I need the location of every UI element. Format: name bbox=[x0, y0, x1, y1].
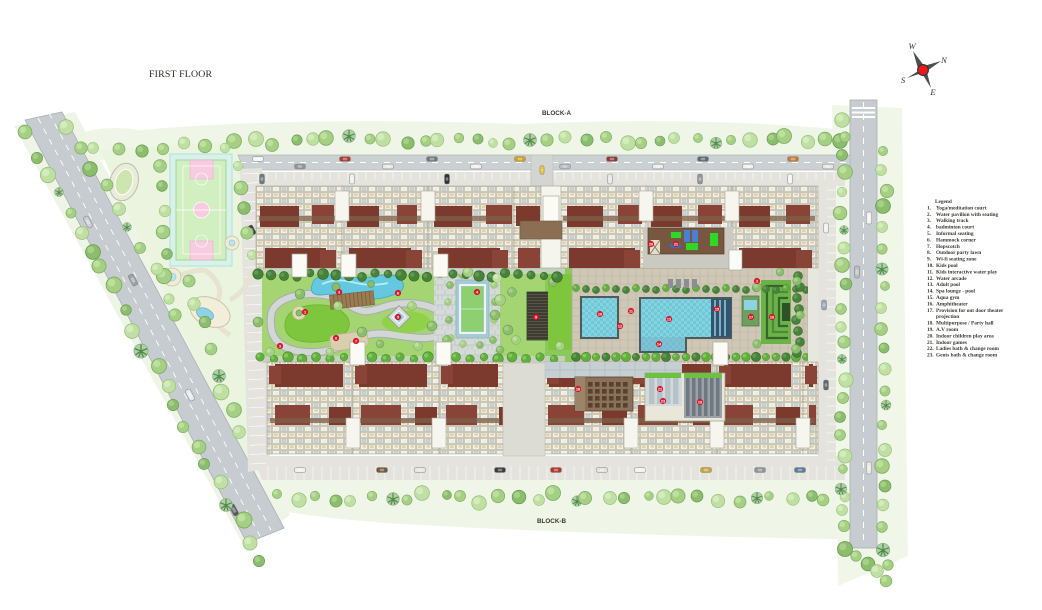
svg-text:Legend: Legend bbox=[935, 199, 952, 205]
svg-text:Aqua gym: Aqua gym bbox=[936, 295, 960, 301]
svg-text:Kids interactive water play: Kids interactive water play bbox=[936, 269, 998, 275]
svg-text:10.: 10. bbox=[927, 263, 934, 269]
svg-text:23.: 23. bbox=[927, 353, 934, 359]
svg-text:Water arcade: Water arcade bbox=[936, 276, 967, 282]
svg-text:3.: 3. bbox=[927, 218, 932, 224]
svg-text:Ladies bath & change room: Ladies bath & change room bbox=[936, 346, 999, 352]
svg-text:4.: 4. bbox=[927, 225, 932, 231]
svg-text:Walking track: Walking track bbox=[936, 218, 969, 224]
svg-text:Indoor children play area: Indoor children play area bbox=[936, 333, 994, 339]
svg-text:20.: 20. bbox=[927, 333, 934, 339]
svg-text:16.: 16. bbox=[927, 301, 934, 307]
svg-text:Amphitheater: Amphitheater bbox=[936, 301, 968, 307]
svg-text:11.: 11. bbox=[927, 269, 934, 275]
svg-text:Provision for out door theater: Provision for out door theater bbox=[936, 308, 1004, 314]
svg-text:16: 16 bbox=[770, 316, 774, 320]
svg-text:18.: 18. bbox=[927, 321, 934, 327]
svg-text:21.: 21. bbox=[927, 340, 934, 346]
svg-text:Yoga/meditation court: Yoga/meditation court bbox=[936, 205, 987, 211]
svg-text:Adult pool: Adult pool bbox=[936, 282, 961, 288]
svg-text:BLOCK-B: BLOCK-B bbox=[537, 518, 566, 525]
svg-text:12.: 12. bbox=[927, 276, 934, 282]
svg-text:9.: 9. bbox=[927, 257, 932, 263]
svg-text:Hammock corner: Hammock corner bbox=[936, 237, 977, 243]
svg-text:1: 1 bbox=[304, 311, 306, 315]
svg-text:21: 21 bbox=[674, 243, 678, 247]
svg-text:19.: 19. bbox=[927, 327, 934, 333]
svg-text:Outdoor party lawn: Outdoor party lawn bbox=[936, 250, 981, 256]
svg-text:3: 3 bbox=[279, 345, 281, 349]
svg-text:13.: 13. bbox=[927, 282, 934, 288]
svg-text:5.: 5. bbox=[927, 231, 932, 237]
svg-text:13: 13 bbox=[667, 318, 671, 322]
svg-text:E: E bbox=[929, 87, 936, 97]
svg-text:5: 5 bbox=[397, 316, 399, 320]
svg-text:22.: 22. bbox=[927, 346, 934, 352]
svg-text:2: 2 bbox=[756, 280, 758, 284]
svg-text:11: 11 bbox=[629, 310, 633, 314]
svg-text:20: 20 bbox=[649, 243, 653, 247]
svg-text:17.: 17. bbox=[927, 308, 934, 314]
svg-text:Indoor games: Indoor games bbox=[936, 340, 967, 346]
svg-text:badminton court: badminton court bbox=[936, 225, 974, 231]
svg-text:23: 23 bbox=[661, 400, 665, 404]
svg-text:9: 9 bbox=[535, 316, 537, 320]
svg-text:A.V room: A.V room bbox=[936, 327, 959, 333]
svg-text:7: 7 bbox=[355, 340, 357, 344]
svg-text:15.: 15. bbox=[927, 295, 934, 301]
svg-text:6.: 6. bbox=[927, 237, 932, 243]
svg-text:6: 6 bbox=[397, 292, 399, 296]
svg-text:Hopscotch: Hopscotch bbox=[936, 244, 960, 250]
svg-text:3: 3 bbox=[338, 291, 340, 295]
svg-text:W: W bbox=[908, 41, 916, 51]
svg-text:FIRST FLOOR: FIRST FLOOR bbox=[149, 69, 213, 80]
svg-text:22: 22 bbox=[658, 388, 662, 392]
svg-text:17: 17 bbox=[749, 316, 753, 320]
svg-text:2.: 2. bbox=[927, 212, 932, 218]
svg-text:19: 19 bbox=[698, 401, 702, 405]
svg-text:8.: 8. bbox=[927, 250, 932, 256]
svg-text:8: 8 bbox=[335, 337, 337, 341]
svg-text:Wi-fi seating zone: Wi-fi seating zone bbox=[936, 257, 977, 263]
svg-text:Kids pool: Kids pool bbox=[936, 263, 958, 269]
svg-text:Informal seating: Informal seating bbox=[936, 231, 974, 237]
svg-text:Water pavilion with seating: Water pavilion with seating bbox=[936, 212, 998, 218]
svg-text:12: 12 bbox=[618, 325, 622, 329]
svg-text:7.: 7. bbox=[927, 244, 932, 250]
svg-text:BLOCK-A: BLOCK-A bbox=[542, 110, 571, 117]
svg-text:10: 10 bbox=[598, 313, 602, 317]
svg-text:Multipurpose / Party hall: Multipurpose / Party hall bbox=[936, 321, 994, 327]
svg-text:projection: projection bbox=[936, 314, 959, 320]
svg-text:15: 15 bbox=[715, 308, 719, 312]
svg-text:14.: 14. bbox=[927, 289, 934, 295]
svg-text:Spa lounge - pool: Spa lounge - pool bbox=[936, 289, 976, 295]
svg-text:18: 18 bbox=[576, 388, 580, 392]
svg-text:Gents bath & change room: Gents bath & change room bbox=[936, 353, 998, 359]
svg-text:1.: 1. bbox=[927, 205, 932, 211]
